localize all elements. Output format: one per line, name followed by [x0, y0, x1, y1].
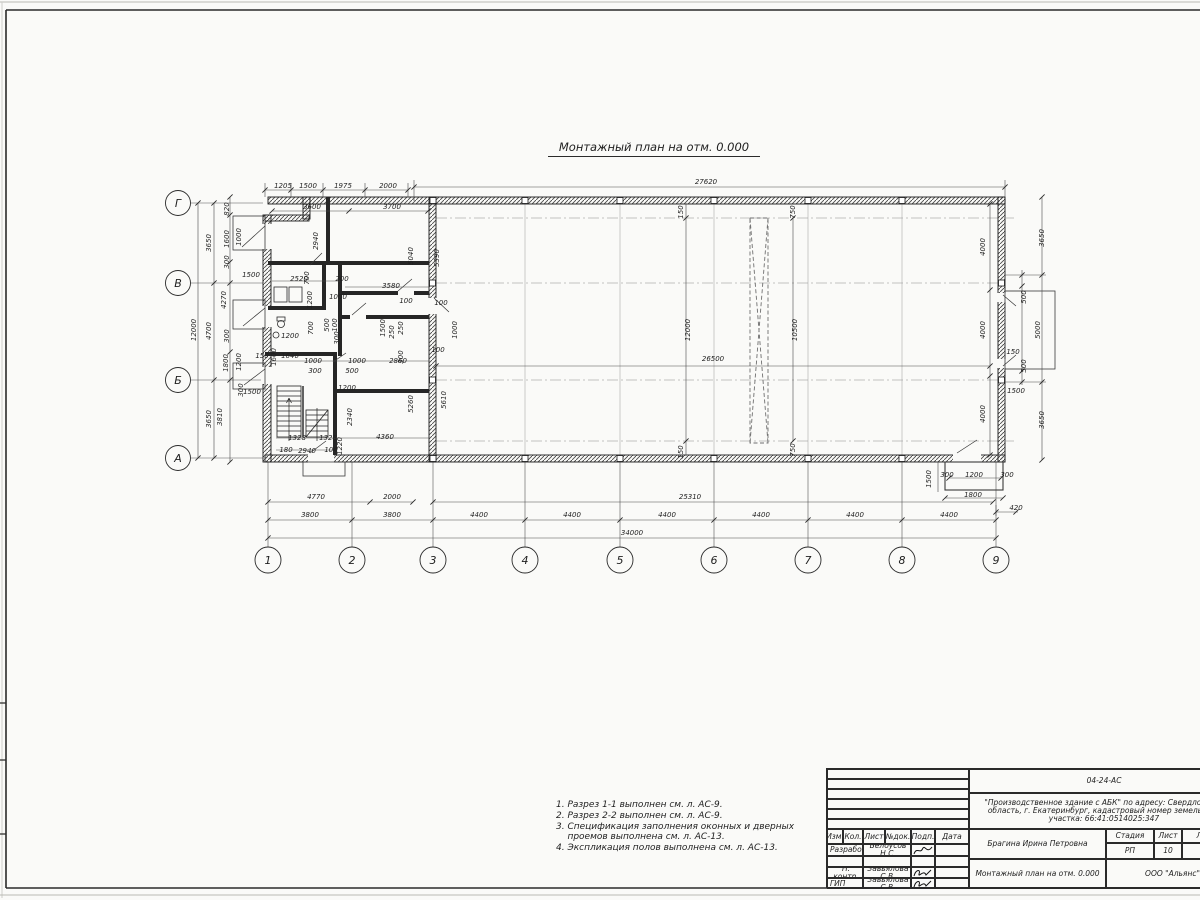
dimension-label: 1205: [274, 182, 292, 190]
dimension-label: 2340: [346, 408, 354, 426]
axis-label: 1: [265, 554, 272, 567]
dimension-label: 150: [677, 205, 685, 219]
wall-openings: [261, 224, 1007, 464]
dimension-label: 3650: [1038, 411, 1046, 429]
dimension-label: 1328: [319, 434, 337, 442]
dimension-label: 2940: [298, 447, 316, 455]
sheet-label: Лист: [1154, 829, 1182, 843]
note-line: 2. Разрез 2-2 выполнен см. л. АС-9.: [556, 811, 794, 822]
dimension-label: 4400: [940, 511, 958, 519]
dimension-label: 3800: [383, 511, 401, 519]
dimension-label: 2000: [379, 182, 397, 190]
stage-value: РП: [1106, 843, 1154, 859]
notes-block: 1. Разрез 1-1 выполнен см. л. АС-9.2. Ра…: [556, 800, 794, 854]
dimension-label: 100: [431, 346, 445, 354]
dimension-label: 1000: [329, 293, 347, 301]
dimension-label: 4000: [979, 321, 987, 339]
dimension-label: 500: [323, 318, 331, 332]
dimension-label: 1000: [304, 357, 322, 365]
dimension-label: 250: [397, 321, 405, 335]
dimension-label: 3650: [205, 234, 213, 252]
dimension-label: 1200: [306, 291, 314, 309]
signature-3: [911, 878, 935, 889]
dimension-label: 4700: [205, 322, 213, 340]
dimension-label: 1000: [451, 321, 459, 339]
dimension-label: 820: [223, 202, 231, 216]
dimension-label: 1600: [223, 230, 231, 248]
dimension-label: 4400: [658, 511, 676, 519]
dimension-label: 1500: [243, 388, 261, 396]
dimension-label: 4400: [846, 511, 864, 519]
axis-bubbles: ГВБА123456789: [166, 191, 1010, 574]
dimensions-layer: 1205150019752000276203600370047702000253…: [190, 178, 1046, 537]
note-line: 4. Экспликация полов выполнена см. л. АС…: [556, 843, 794, 854]
axis-label: А: [173, 452, 182, 465]
dimension-label: 1975: [334, 182, 352, 190]
signature-icon: [912, 868, 934, 878]
dimension-label: 1000: [235, 228, 243, 246]
dimension-label: 1500: [379, 319, 387, 337]
axis-label: Г: [175, 197, 182, 210]
dimension-label: 3580: [382, 282, 400, 290]
row-name-0: Белоусов Н.С.: [863, 844, 911, 856]
sanitary-fixtures: [273, 287, 302, 338]
dimension-label: 500: [1020, 290, 1028, 304]
drawing-sheet: { "sheet": { "drawing_title": "Монтажный…: [0, 0, 1200, 900]
stage-label: Стадия: [1106, 829, 1154, 843]
dimension-label: 1600: [270, 348, 278, 366]
col-data: Дата: [935, 829, 969, 844]
dimension-label: 4270: [220, 291, 228, 309]
dimension-label: 750: [789, 205, 797, 219]
dimension-label: 26500: [702, 355, 725, 363]
axis-label: 4: [522, 554, 529, 567]
dimension-label: 180: [279, 446, 293, 454]
dimension-label: 4000: [979, 238, 987, 256]
dimension-label: 1640: [281, 352, 299, 360]
row-name-3: Завьялова С.В.: [863, 878, 911, 889]
dimension-label: 500: [1020, 359, 1028, 373]
axis-label: 7: [805, 554, 812, 567]
sheets-total: 13: [1182, 843, 1200, 859]
dimension-label: 150: [1006, 348, 1020, 356]
dimension-label: 4770: [307, 493, 325, 501]
columns-layer: [430, 198, 1005, 462]
dimension-label: 500: [345, 367, 359, 375]
dimension-label: 300: [333, 331, 341, 345]
porches-layer: [233, 216, 1055, 490]
dimension-label: 4360: [376, 433, 394, 441]
dimension-label: 100: [434, 299, 448, 307]
dimension-lines: [198, 180, 1046, 538]
col-list: Лист: [863, 829, 885, 844]
dimension-label: 5040: [407, 247, 415, 265]
dimension-label: 10500: [791, 318, 799, 341]
customer-name: Брагина Ирина Петровна: [969, 829, 1106, 859]
col-kol: Кол.: [843, 829, 863, 844]
note-line: 1. Разрез 1-1 выполнен см. л. АС-9.: [556, 800, 794, 811]
dimension-label: 150: [677, 445, 685, 459]
dimension-label: 1500: [925, 470, 933, 488]
dimension-label: 5260: [407, 395, 415, 413]
title-block: Изм. Кол. Лист №док. Подп. Дата Разработ…: [826, 768, 1200, 888]
dimension-label: 4400: [470, 511, 488, 519]
sheet-title: Монтажный план на отм. 0.000: [969, 859, 1106, 889]
axis-label: В: [174, 277, 182, 290]
dimension-label: 300: [940, 471, 954, 479]
dimension-label: 5610: [440, 391, 448, 409]
note-line: 3. Спецификация заполнения оконных и две…: [556, 822, 794, 833]
dimension-label: 104: [324, 446, 337, 454]
dimension-label: 4400: [752, 511, 770, 519]
col-ndok: №док.: [885, 829, 911, 844]
dimension-label: 300: [223, 255, 231, 269]
project-description: "Производственное здание с АБК" по адрес…: [969, 793, 1200, 829]
dimension-label: 420: [1009, 504, 1023, 512]
dimension-label: 5000: [1034, 321, 1042, 339]
axis-label: 9: [993, 554, 1000, 567]
dimension-label: 300: [1000, 471, 1014, 479]
dimension-label: 100: [331, 318, 339, 332]
dimension-label: 1200: [281, 332, 299, 340]
signature-0: [911, 844, 935, 856]
row-role-3: ГИП: [827, 878, 863, 889]
dimension-label: 5390: [433, 249, 441, 267]
brace-dashed: [750, 218, 768, 443]
note-line: проемов выполнена см. л. АС-13.: [556, 832, 794, 843]
row-role-2: Н. контр.: [827, 867, 863, 878]
dimension-label: 300: [308, 367, 322, 375]
dimension-label: 27620: [695, 178, 718, 186]
axis-label: 6: [711, 554, 718, 567]
dimension-label: 100: [399, 297, 413, 305]
dimension-label: 2940: [312, 232, 320, 250]
axis-label: Б: [174, 374, 182, 387]
row-role-0: Разработал: [827, 844, 863, 856]
dimension-label: 700: [303, 271, 311, 285]
dimension-label: 25310: [679, 493, 702, 501]
door-leaves: [242, 226, 1016, 453]
dimension-label: 2860: [389, 357, 407, 365]
dimension-label: 1200: [965, 471, 983, 479]
dimension-label: 12000: [684, 318, 692, 341]
drawing-title: Монтажный план на отм. 0.000: [548, 140, 760, 157]
dimension-label: 3800: [301, 511, 319, 519]
dimension-label: 750: [789, 443, 797, 457]
dimension-label: 200: [335, 275, 349, 283]
col-podp: Подп.: [911, 829, 935, 844]
col-izm: Изм.: [827, 829, 843, 844]
dimension-label: 700: [307, 321, 315, 335]
signature-icon: [912, 845, 934, 856]
dimension-label: 1500: [1007, 387, 1025, 395]
dimension-label: 1800: [222, 354, 230, 372]
stair: [277, 386, 328, 441]
dimension-label: 1500: [242, 271, 260, 279]
axis-label: 3: [430, 554, 437, 567]
dimension-label: 1200: [235, 353, 243, 371]
dimension-label: 1328: [288, 434, 306, 442]
dimension-label: 3600: [303, 203, 321, 211]
company-name: ООО "Альянс": [1106, 859, 1200, 889]
floor-plan-svg: ГВБА123456789 12051500197520002762036003…: [0, 0, 1200, 900]
dimension-label: 34000: [621, 529, 644, 537]
axis-label: 8: [899, 554, 906, 567]
axis-label: 2: [349, 554, 356, 567]
dimension-label: 4400: [563, 511, 581, 519]
dimension-label: 3650: [1038, 229, 1046, 247]
dimension-label: 3810: [216, 408, 224, 426]
walls-layer: [263, 197, 1005, 462]
dimension-label: 2000: [383, 493, 401, 501]
dimension-label: 300: [223, 329, 231, 343]
document-code: 04-24-АС: [969, 769, 1200, 793]
dimension-label: 12000: [190, 318, 198, 341]
dimension-label: 4000: [979, 405, 987, 423]
sheet-number: 10: [1154, 843, 1182, 859]
dimension-label: 1200: [338, 384, 356, 392]
signature-icon: [912, 879, 934, 889]
dimension-label: 1800: [964, 491, 982, 499]
dimension-label: 1500: [299, 182, 317, 190]
dimension-label: 3650: [205, 410, 213, 428]
signature-2: [911, 867, 935, 878]
sheets-label: Листов: [1182, 829, 1200, 843]
dimension-label: 3700: [383, 203, 401, 211]
axis-label: 5: [617, 554, 624, 567]
sheet-frame: [0, 2, 1200, 898]
dimension-label: 1000: [348, 357, 366, 365]
row-name-2: Завьялова С.В.: [863, 867, 911, 878]
dimension-label: 150: [255, 352, 269, 360]
dimension-label: 250: [388, 325, 396, 339]
